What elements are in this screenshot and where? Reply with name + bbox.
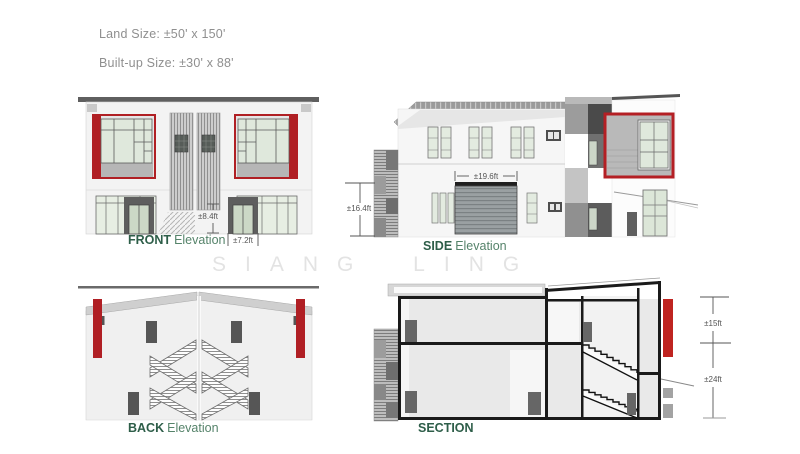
- back-label-primary: BACK: [128, 421, 164, 435]
- side-louver-column: [374, 150, 398, 237]
- side-lower-vent: [548, 202, 562, 212]
- back-elevation-label: BACKElevation: [128, 421, 219, 435]
- front-dim-door-width-label: ±7.2ft: [233, 236, 254, 245]
- front-elevation-label: FRONTElevation: [128, 233, 226, 247]
- section-louver-column: [374, 329, 398, 421]
- side-elevation-drawing: ±19.6ft ±16.4ft: [345, 94, 698, 237]
- section-drawing: ±15ft ±24ft: [374, 278, 731, 421]
- back-label-secondary: Elevation: [167, 421, 218, 435]
- section-dims: [700, 297, 731, 418]
- front-roof-band: [78, 97, 319, 102]
- side-dim-shutter-label: ±19.6ft: [474, 172, 499, 181]
- front-label-secondary: Elevation: [174, 233, 225, 247]
- side-elevation-label: SIDEElevation: [423, 239, 507, 253]
- front-storefront-right: [228, 196, 297, 234]
- side-label-primary: SIDE: [423, 239, 452, 253]
- section-red-band: [663, 299, 673, 357]
- front-dim-entrance-height-label: ±8.4ft: [198, 212, 219, 221]
- back-red-strip-left: [93, 299, 102, 358]
- side-dim-height-label: ±16.4ft: [347, 204, 372, 213]
- front-elevation-drawing: ±8.4ft ±7.2ft: [78, 97, 319, 246]
- back-red-strip-right: [296, 299, 305, 358]
- section-dim-lower-label: ±24ft: [704, 375, 723, 384]
- front-storefront-left: [96, 196, 156, 234]
- section-label-primary: SECTION: [418, 421, 474, 435]
- back-elevation-drawing: [78, 286, 319, 420]
- back-roof-line: [78, 286, 319, 289]
- front-window-left: [93, 115, 155, 178]
- side-upper-vent: [546, 130, 561, 141]
- front-window-right: [235, 115, 297, 178]
- drawing-sheet: Land Size: ±50' x 150' Built-up Size: ±3…: [0, 0, 800, 454]
- side-label-secondary: Elevation: [455, 239, 506, 253]
- side-corner-small-door: [627, 212, 637, 236]
- side-roller-shutter: [455, 182, 517, 234]
- side-corner-perspective: [605, 94, 698, 237]
- front-label-primary: FRONT: [128, 233, 171, 247]
- section-label: SECTION: [418, 421, 474, 435]
- section-dim-upper-label: ±15ft: [704, 319, 723, 328]
- elevations-canvas: ±8.4ft ±7.2ft: [0, 0, 800, 454]
